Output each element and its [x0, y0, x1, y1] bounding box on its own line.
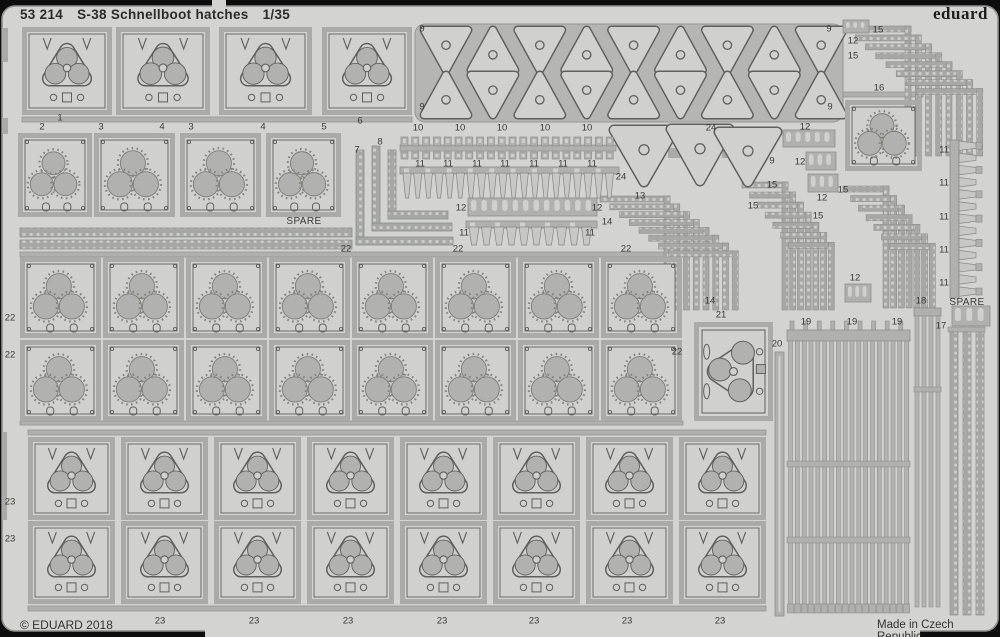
photoetch-fret-image: [0, 0, 1000, 637]
photo-background: 53 214S-38 Schnellboot hatches1/35 eduar…: [0, 0, 1000, 637]
